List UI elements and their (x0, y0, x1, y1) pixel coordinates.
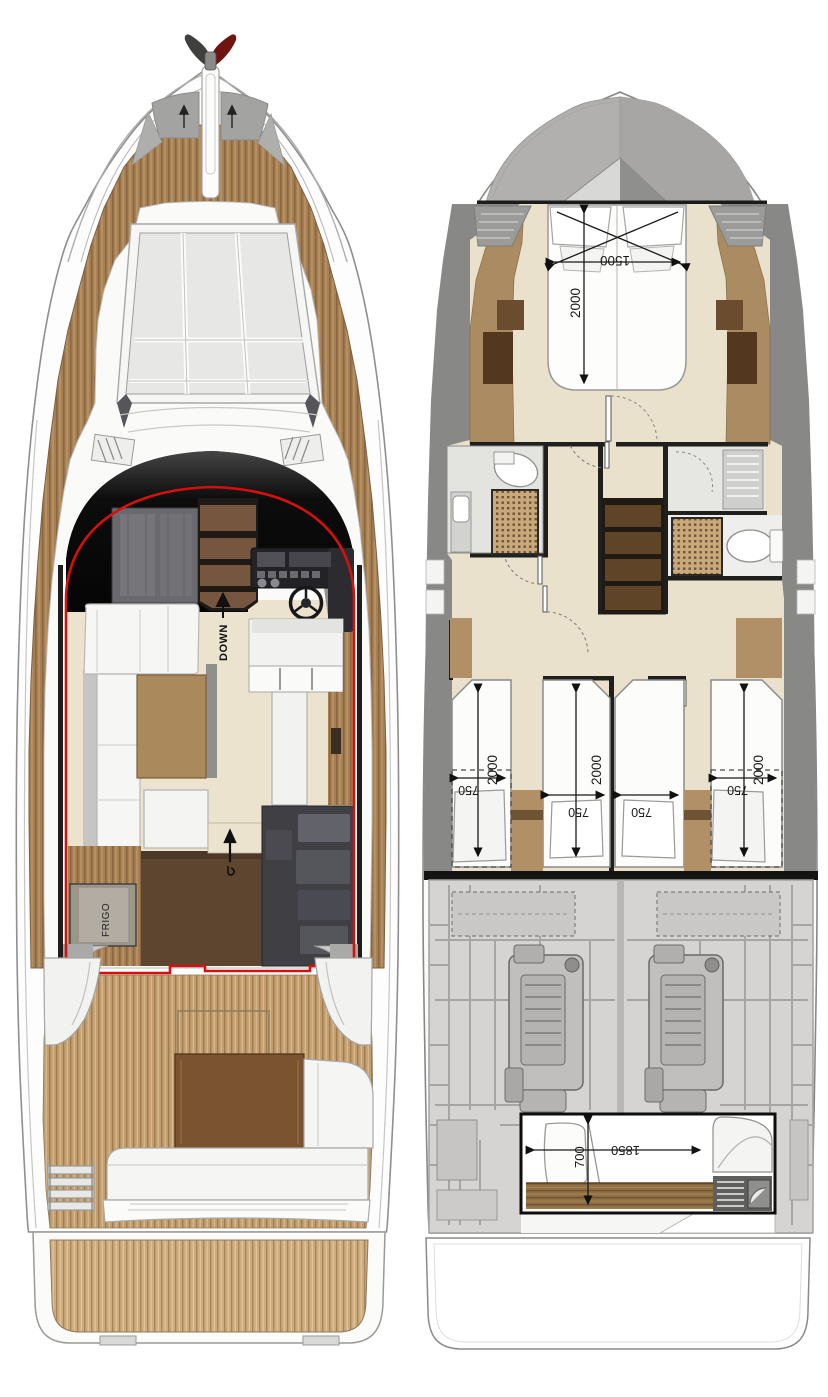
svg-text:2000: 2000 (485, 755, 500, 785)
svg-text:700: 700 (572, 1146, 587, 1168)
svg-text:750: 750 (631, 805, 652, 819)
svg-text:750: 750 (727, 783, 748, 797)
svg-text:DOWN: DOWN (218, 624, 230, 661)
svg-text:2000: 2000 (751, 755, 766, 785)
svg-text:750: 750 (568, 805, 589, 819)
svg-text:2000: 2000 (589, 755, 604, 785)
svg-text:1500: 1500 (600, 253, 630, 268)
svg-text:750: 750 (458, 783, 479, 797)
svg-text:FRIGO: FRIGO (101, 903, 112, 937)
svg-text:2000: 2000 (568, 288, 583, 318)
svg-text:1850: 1850 (611, 1143, 640, 1158)
